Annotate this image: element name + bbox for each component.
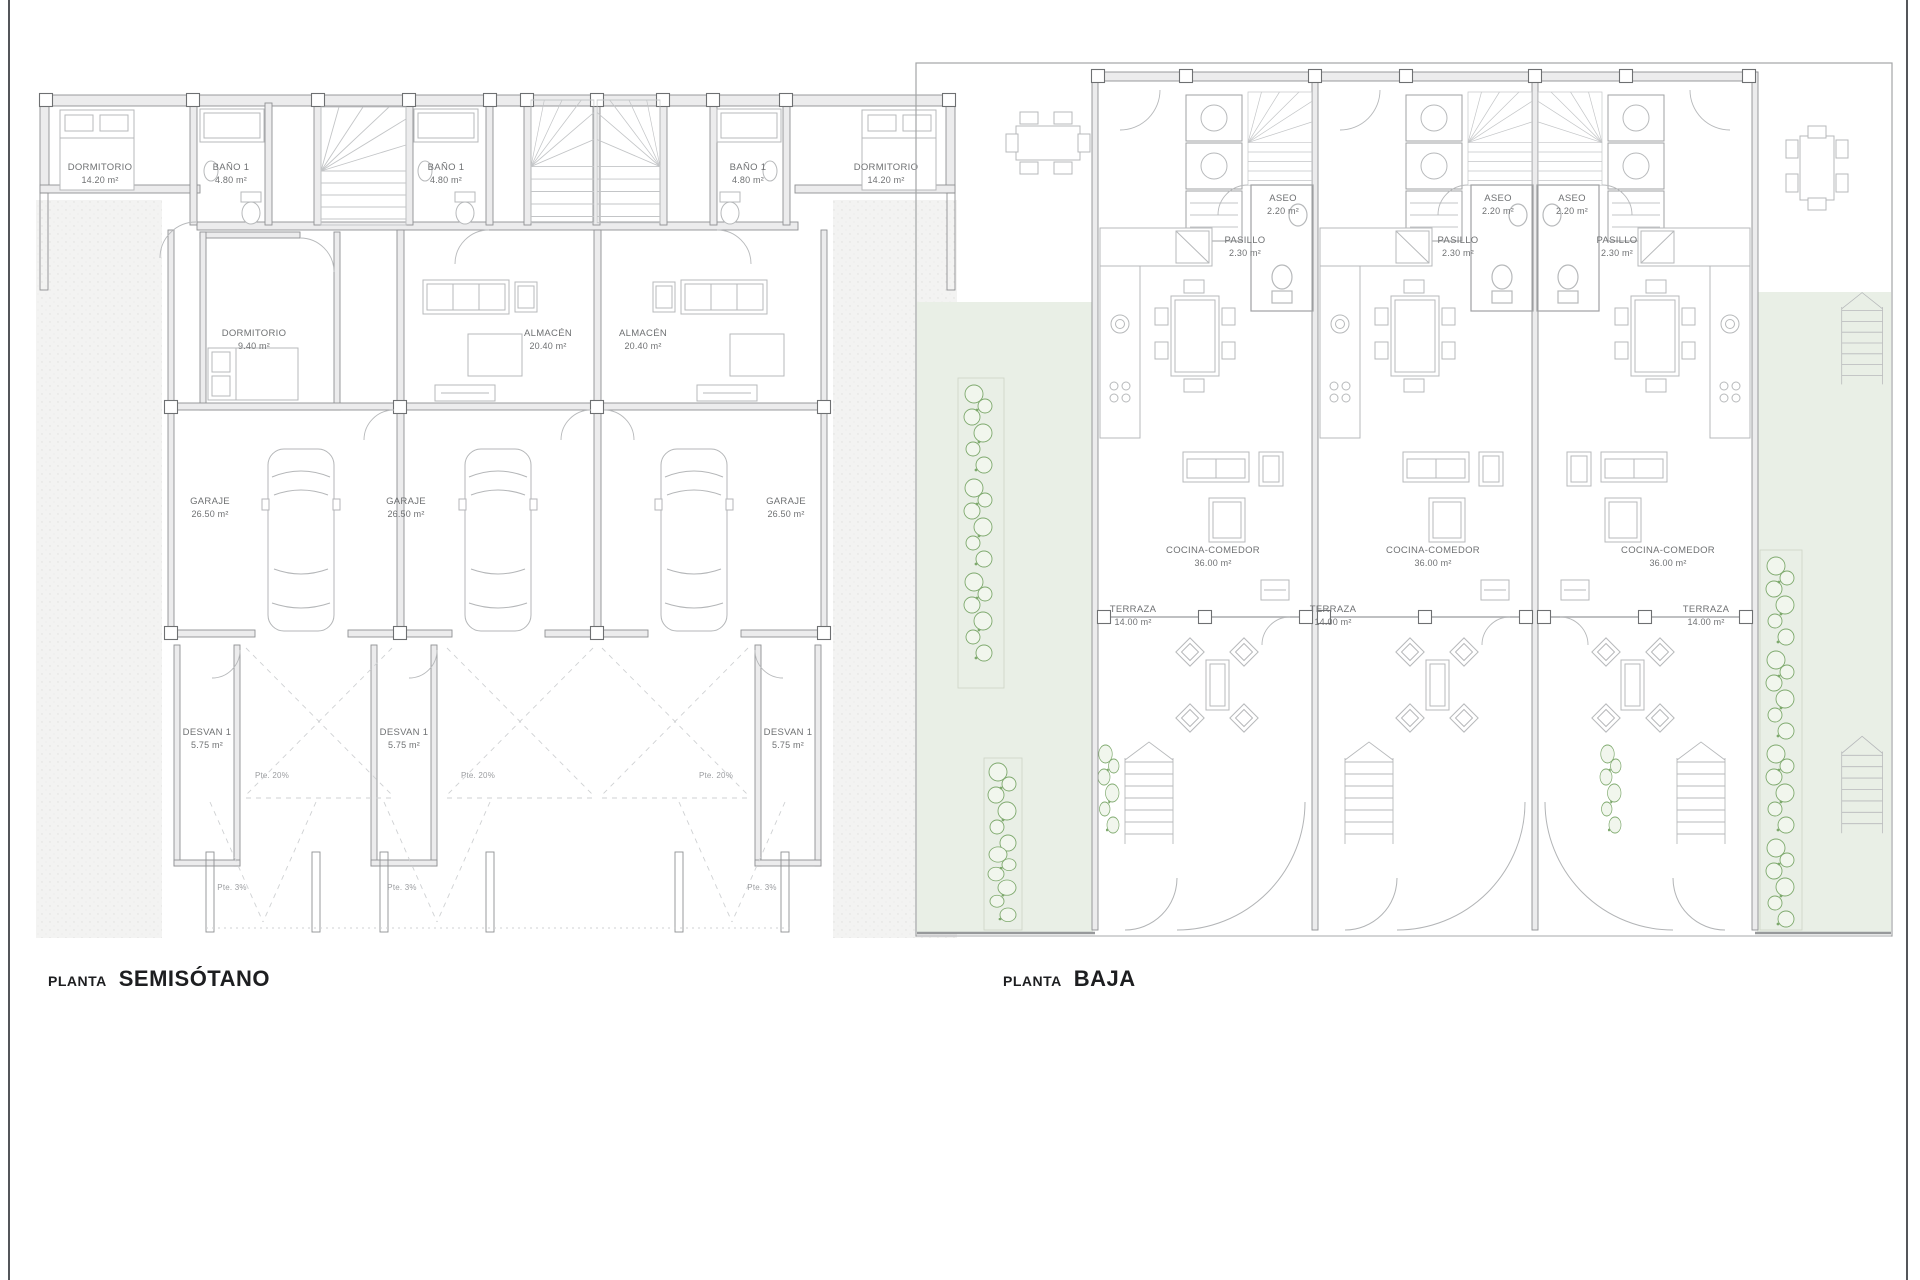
label-semi-garaje-1-name: GARAJE bbox=[190, 496, 230, 507]
label-semi-bano-1-area: 4.80 m² bbox=[215, 175, 247, 185]
drawing-sheet: DORMITORIO 14.20 m² BAÑO 1 4.80 m² BAÑO … bbox=[0, 0, 1920, 1280]
plan-title-baja-name: BAJA bbox=[1074, 966, 1136, 992]
label-baja-aseo-1-area: 2.20 m² bbox=[1267, 206, 1299, 216]
label-slope-3-2: Pte. 3% bbox=[387, 883, 416, 892]
label-semi-desvan-3-name: DESVAN 1 bbox=[764, 727, 813, 738]
baja-unit-1-interior bbox=[1100, 92, 1313, 844]
label-baja-cocina-1-name: COCINA-COMEDOR bbox=[1166, 545, 1260, 556]
label-slope-3-3: Pte. 3% bbox=[747, 883, 776, 892]
label-baja-cocina-3-area: 36.00 m² bbox=[1649, 558, 1686, 568]
label-baja-pasillo-3-area: 2.30 m² bbox=[1601, 248, 1633, 258]
label-baja-pasillo-2-area: 2.30 m² bbox=[1442, 248, 1474, 258]
label-semi-dormitorio-3-area: 9.40 m² bbox=[238, 341, 270, 351]
label-semi-desvan-2-area: 5.75 m² bbox=[388, 740, 420, 750]
label-semi-almacen-2-area: 20.40 m² bbox=[624, 341, 661, 351]
label-slope-20-1: Pte. 20% bbox=[255, 771, 289, 780]
label-semi-garaje-1-area: 26.50 m² bbox=[191, 509, 228, 519]
label-baja-terraza-2-area: 14.00 m² bbox=[1314, 617, 1351, 627]
label-slope-3-1: Pte. 3% bbox=[217, 883, 246, 892]
label-baja-pasillo-1-name: PASILLO bbox=[1225, 235, 1266, 246]
baja-unit-3-interior bbox=[1537, 92, 1750, 844]
plan-title-baja-prefix: PLANTA bbox=[1003, 973, 1062, 989]
plan-semisotano-drawing: DORMITORIO 14.20 m² BAÑO 1 4.80 m² BAÑO … bbox=[36, 94, 957, 939]
label-semi-almacen-2-name: ALMACÉN bbox=[619, 328, 667, 339]
semisotano-almacen-furniture bbox=[423, 280, 784, 401]
plan-title-semisotano: PLANTA SEMISÓTANO bbox=[48, 966, 270, 992]
label-baja-pasillo-2-name: PASILLO bbox=[1438, 235, 1479, 246]
label-semi-bano-3-name: BAÑO 1 bbox=[730, 162, 767, 173]
label-baja-terraza-3-name: TERRAZA bbox=[1683, 604, 1730, 615]
label-semi-garaje-2-name: GARAJE bbox=[386, 496, 426, 507]
label-semi-dormitorio-1-area: 14.20 m² bbox=[81, 175, 118, 185]
label-baja-pasillo-1-area: 2.30 m² bbox=[1229, 248, 1261, 258]
label-semi-dormitorio-2-area: 14.20 m² bbox=[867, 175, 904, 185]
label-semi-bano-2-name: BAÑO 1 bbox=[428, 162, 465, 173]
baja-entrance-gates bbox=[1125, 802, 1725, 930]
label-baja-aseo-2-area: 2.20 m² bbox=[1482, 206, 1514, 216]
semisotano-cars bbox=[262, 449, 733, 631]
label-semi-bano-1-name: BAÑO 1 bbox=[213, 162, 250, 173]
label-semi-almacen-1-name: ALMACÉN bbox=[524, 328, 572, 339]
label-semi-garaje-2-area: 26.50 m² bbox=[387, 509, 424, 519]
label-baja-terraza-3-area: 14.00 m² bbox=[1687, 617, 1724, 627]
label-baja-aseo-3-area: 2.20 m² bbox=[1556, 206, 1588, 216]
label-baja-pasillo-3-name: PASILLO bbox=[1597, 235, 1638, 246]
label-semi-almacen-1-area: 20.40 m² bbox=[529, 341, 566, 351]
label-semi-bano-2-area: 4.80 m² bbox=[430, 175, 462, 185]
label-semi-dormitorio-2-name: DORMITORIO bbox=[854, 162, 919, 173]
plan-title-semisotano-prefix: PLANTA bbox=[48, 973, 107, 989]
label-semi-dormitorio-1-name: DORMITORIO bbox=[68, 162, 133, 173]
label-semi-dormitorio-3-name: DORMITORIO bbox=[222, 328, 287, 339]
label-semi-desvan-2-name: DESVAN 1 bbox=[380, 727, 429, 738]
label-semi-desvan-1-area: 5.75 m² bbox=[191, 740, 223, 750]
floor-plans-drawing: DORMITORIO 14.20 m² BAÑO 1 4.80 m² BAÑO … bbox=[0, 0, 1920, 1280]
plan-baja-drawing: ASEO 2.20 m² ASEO 2.20 m² ASEO 2.20 m² P… bbox=[916, 63, 1892, 936]
label-baja-cocina-3-name: COCINA-COMEDOR bbox=[1621, 545, 1715, 556]
label-semi-bano-3-area: 4.80 m² bbox=[732, 175, 764, 185]
label-baja-terraza-1-name: TERRAZA bbox=[1110, 604, 1157, 615]
label-baja-aseo-1-name: ASEO bbox=[1269, 193, 1297, 204]
label-baja-cocina-2-name: COCINA-COMEDOR bbox=[1386, 545, 1480, 556]
label-semi-desvan-1-name: DESVAN 1 bbox=[183, 727, 232, 738]
label-semi-garaje-3-name: GARAJE bbox=[766, 496, 806, 507]
plan-title-baja: PLANTA BAJA bbox=[1003, 966, 1136, 992]
label-baja-terraza-2-name: TERRAZA bbox=[1310, 604, 1357, 615]
label-slope-20-3: Pte. 20% bbox=[699, 771, 733, 780]
label-baja-terraza-1-area: 14.00 m² bbox=[1114, 617, 1151, 627]
semisotano-ramps bbox=[206, 648, 790, 928]
plan-title-semisotano-name: SEMISÓTANO bbox=[119, 966, 270, 992]
label-baja-aseo-2-name: ASEO bbox=[1484, 193, 1512, 204]
label-slope-20-2: Pte. 20% bbox=[461, 771, 495, 780]
label-baja-aseo-3-name: ASEO bbox=[1558, 193, 1586, 204]
label-semi-garaje-3-area: 26.50 m² bbox=[767, 509, 804, 519]
label-baja-cocina-1-area: 36.00 m² bbox=[1194, 558, 1231, 568]
label-baja-cocina-2-area: 36.00 m² bbox=[1414, 558, 1451, 568]
baja-unit-2-interior bbox=[1320, 92, 1533, 844]
label-semi-desvan-3-area: 5.75 m² bbox=[772, 740, 804, 750]
